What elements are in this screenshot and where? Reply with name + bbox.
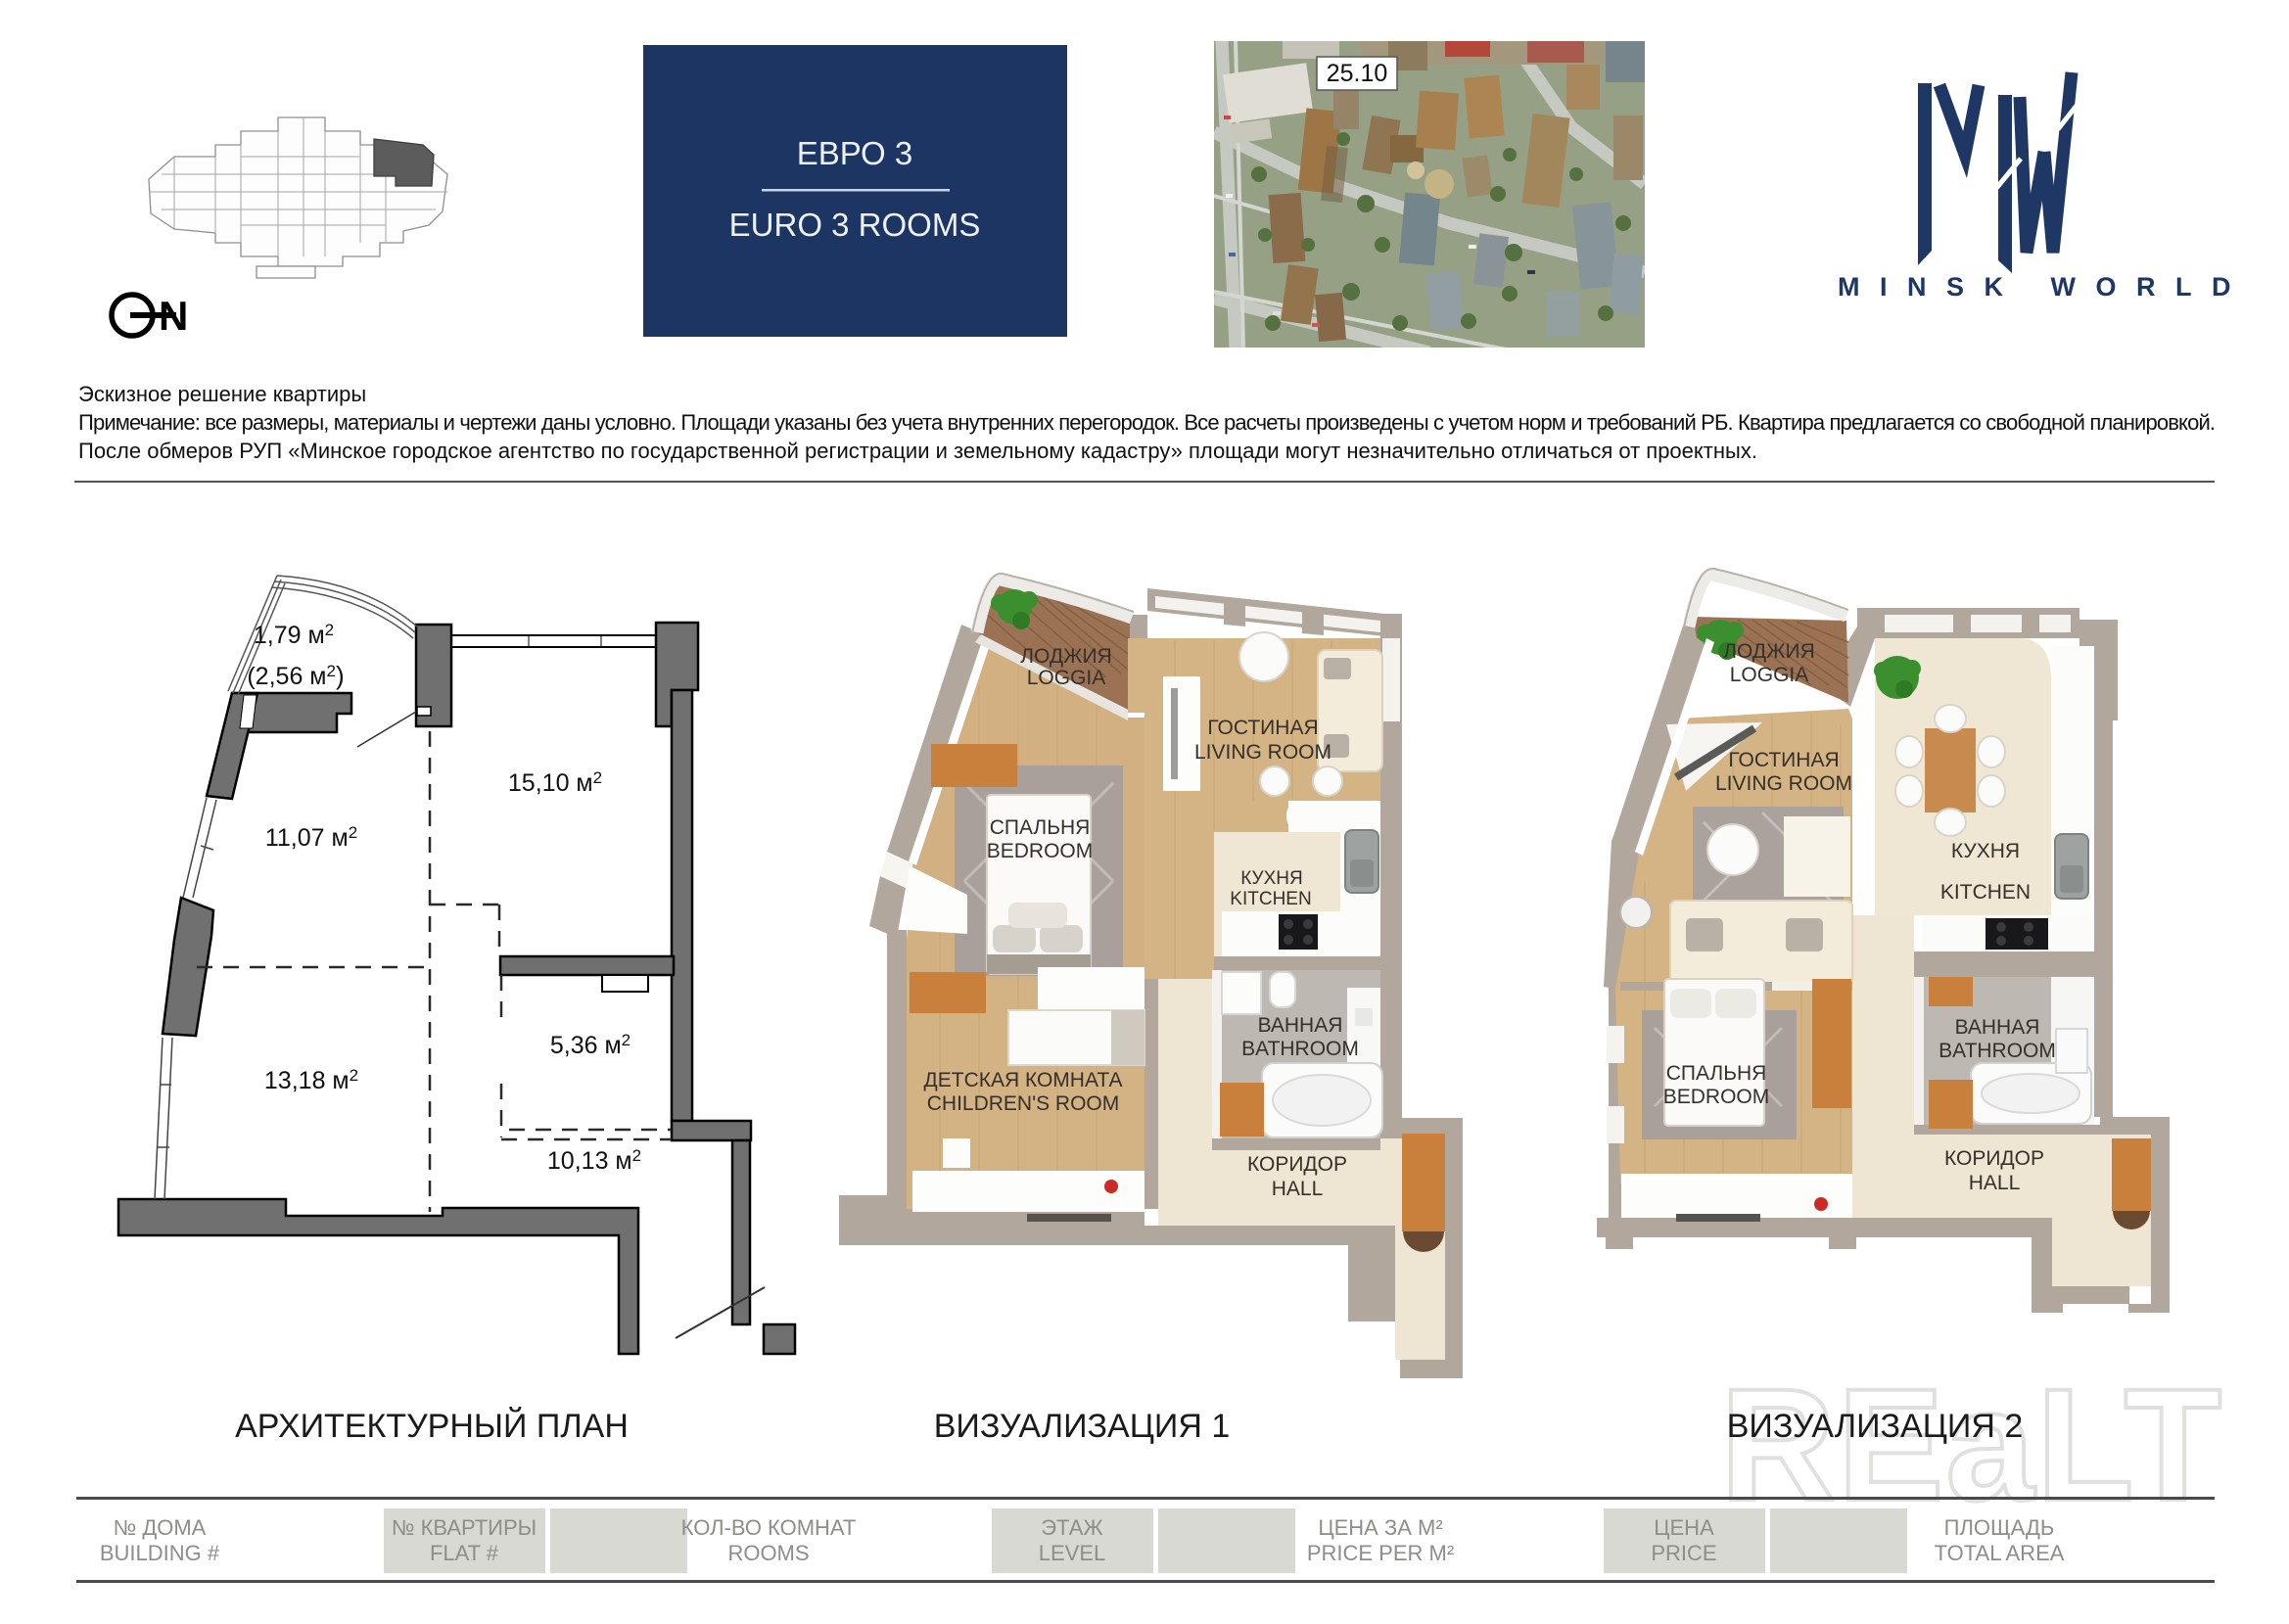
svg-text:ЛОДЖИЯ: ЛОДЖИЯ bbox=[1723, 640, 1815, 663]
svg-text:LOGGIA: LOGGIA bbox=[1027, 667, 1106, 689]
svg-text:№ ДОМА: № ДОМА bbox=[114, 1515, 207, 1540]
svg-text:13,18 м2: 13,18 м2 bbox=[264, 1066, 358, 1094]
svg-text:КУХНЯ: КУХНЯ bbox=[1951, 840, 2020, 862]
svg-text:BATHROOM: BATHROOM bbox=[1241, 1038, 1359, 1060]
svg-text:5,36 м2: 5,36 м2 bbox=[550, 1031, 631, 1059]
svg-text:ЦЕНА ЗА М²: ЦЕНА ЗА М² bbox=[1318, 1515, 1442, 1540]
svg-text:№ КВАРТИРЫ: № КВАРТИРЫ bbox=[392, 1515, 537, 1540]
svg-text:Эскизное решение квартиры: Эскизное решение квартиры bbox=[78, 382, 366, 406]
svg-text:ЦЕНА: ЦЕНА bbox=[1654, 1515, 1714, 1540]
svg-text:(2,56 м2): (2,56 м2) bbox=[247, 661, 344, 690]
svg-text:MINSK WORLD: MINSK WORLD bbox=[1838, 272, 2251, 302]
svg-text:ЛОДЖИЯ: ЛОДЖИЯ bbox=[1020, 645, 1112, 668]
svg-text:1,79 м2: 1,79 м2 bbox=[254, 621, 334, 649]
svg-text:FLAT #: FLAT # bbox=[430, 1541, 499, 1565]
svg-text:СПАЛЬНЯ: СПАЛЬНЯ bbox=[1666, 1062, 1767, 1085]
svg-text:ROOMS: ROOMS bbox=[727, 1541, 809, 1565]
svg-text:CHILDREN'S ROOM: CHILDREN'S ROOM bbox=[927, 1092, 1120, 1115]
svg-text:ГОСТИНАЯ: ГОСТИНАЯ bbox=[1728, 749, 1839, 771]
svg-text:ПЛОЩАДЬ: ПЛОЩАДЬ bbox=[1944, 1515, 2055, 1540]
svg-text:BUILDING #: BUILDING # bbox=[100, 1541, 220, 1565]
svg-text:ДЕТСКАЯ КОМНАТА: ДЕТСКАЯ КОМНАТА bbox=[924, 1069, 1123, 1091]
svg-text:PRICE PER M²: PRICE PER M² bbox=[1307, 1541, 1454, 1565]
svg-text:КУХНЯ: КУХНЯ bbox=[1240, 868, 1302, 889]
svg-text:ВАННАЯ: ВАННАЯ bbox=[1258, 1014, 1343, 1037]
svg-text:АРХИТЕКТУРНЫЙ ПЛАН: АРХИТЕКТУРНЫЙ ПЛАН bbox=[235, 1408, 629, 1445]
svg-text:BEDROOM: BEDROOM bbox=[987, 840, 1094, 862]
svg-text:PRICE: PRICE bbox=[1651, 1541, 1716, 1565]
svg-text:ГОСТИНАЯ: ГОСТИНАЯ bbox=[1207, 717, 1318, 739]
svg-text:ЕВРО 3: ЕВРО 3 bbox=[797, 135, 913, 171]
svg-text:ВАННАЯ: ВАННАЯ bbox=[1955, 1016, 2040, 1039]
svg-text:СПАЛЬНЯ: СПАЛЬНЯ bbox=[990, 816, 1091, 839]
svg-text:ЭТАЖ: ЭТАЖ bbox=[1041, 1515, 1103, 1540]
svg-text:BEDROOM: BEDROOM bbox=[1663, 1086, 1770, 1108]
svg-text:КОРИДОР: КОРИДОР bbox=[1247, 1153, 1347, 1176]
svg-text:HALL: HALL bbox=[1969, 1172, 2021, 1194]
svg-text:КОРИДОР: КОРИДОР bbox=[1944, 1147, 2044, 1170]
svg-text:25.10: 25.10 bbox=[1327, 60, 1388, 87]
svg-text:LIVING ROOM: LIVING ROOM bbox=[1715, 772, 1852, 795]
svg-text:После обмеров РУП «Минское гор: После обмеров РУП «Минское городское аге… bbox=[78, 439, 1757, 463]
svg-text:ВИЗУАЛИЗАЦИЯ 2: ВИЗУАЛИЗАЦИЯ 2 bbox=[1727, 1408, 2023, 1445]
svg-text:BATHROOM: BATHROOM bbox=[1939, 1040, 2056, 1062]
svg-text:LOGGIA: LOGGIA bbox=[1730, 664, 1809, 686]
svg-text:EURO 3 ROOMS: EURO 3 ROOMS bbox=[729, 207, 981, 243]
svg-text:КОЛ-ВО КОМНАТ: КОЛ-ВО КОМНАТ bbox=[681, 1515, 857, 1540]
svg-text:TOTAL AREA: TOTAL AREA bbox=[1935, 1541, 2065, 1565]
svg-text:HALL: HALL bbox=[1272, 1178, 1324, 1200]
svg-text:11,07 м2: 11,07 м2 bbox=[265, 823, 357, 852]
svg-text:10,13 м2: 10,13 м2 bbox=[547, 1146, 641, 1175]
svg-text:N: N bbox=[159, 293, 188, 339]
svg-text:ВИЗУАЛИЗАЦИЯ 1: ВИЗУАЛИЗАЦИЯ 1 bbox=[934, 1408, 1230, 1445]
svg-text:15,10 м2: 15,10 м2 bbox=[508, 768, 602, 797]
svg-text:LIVING ROOM: LIVING ROOM bbox=[1194, 741, 1331, 764]
svg-text:KITCHEN: KITCHEN bbox=[1230, 889, 1311, 909]
svg-text:LEVEL: LEVEL bbox=[1039, 1541, 1106, 1565]
svg-text:KITCHEN: KITCHEN bbox=[1940, 881, 2031, 904]
svg-text:Примечание: все размеры, матер: Примечание: все размеры, материалы и чер… bbox=[78, 410, 2216, 435]
